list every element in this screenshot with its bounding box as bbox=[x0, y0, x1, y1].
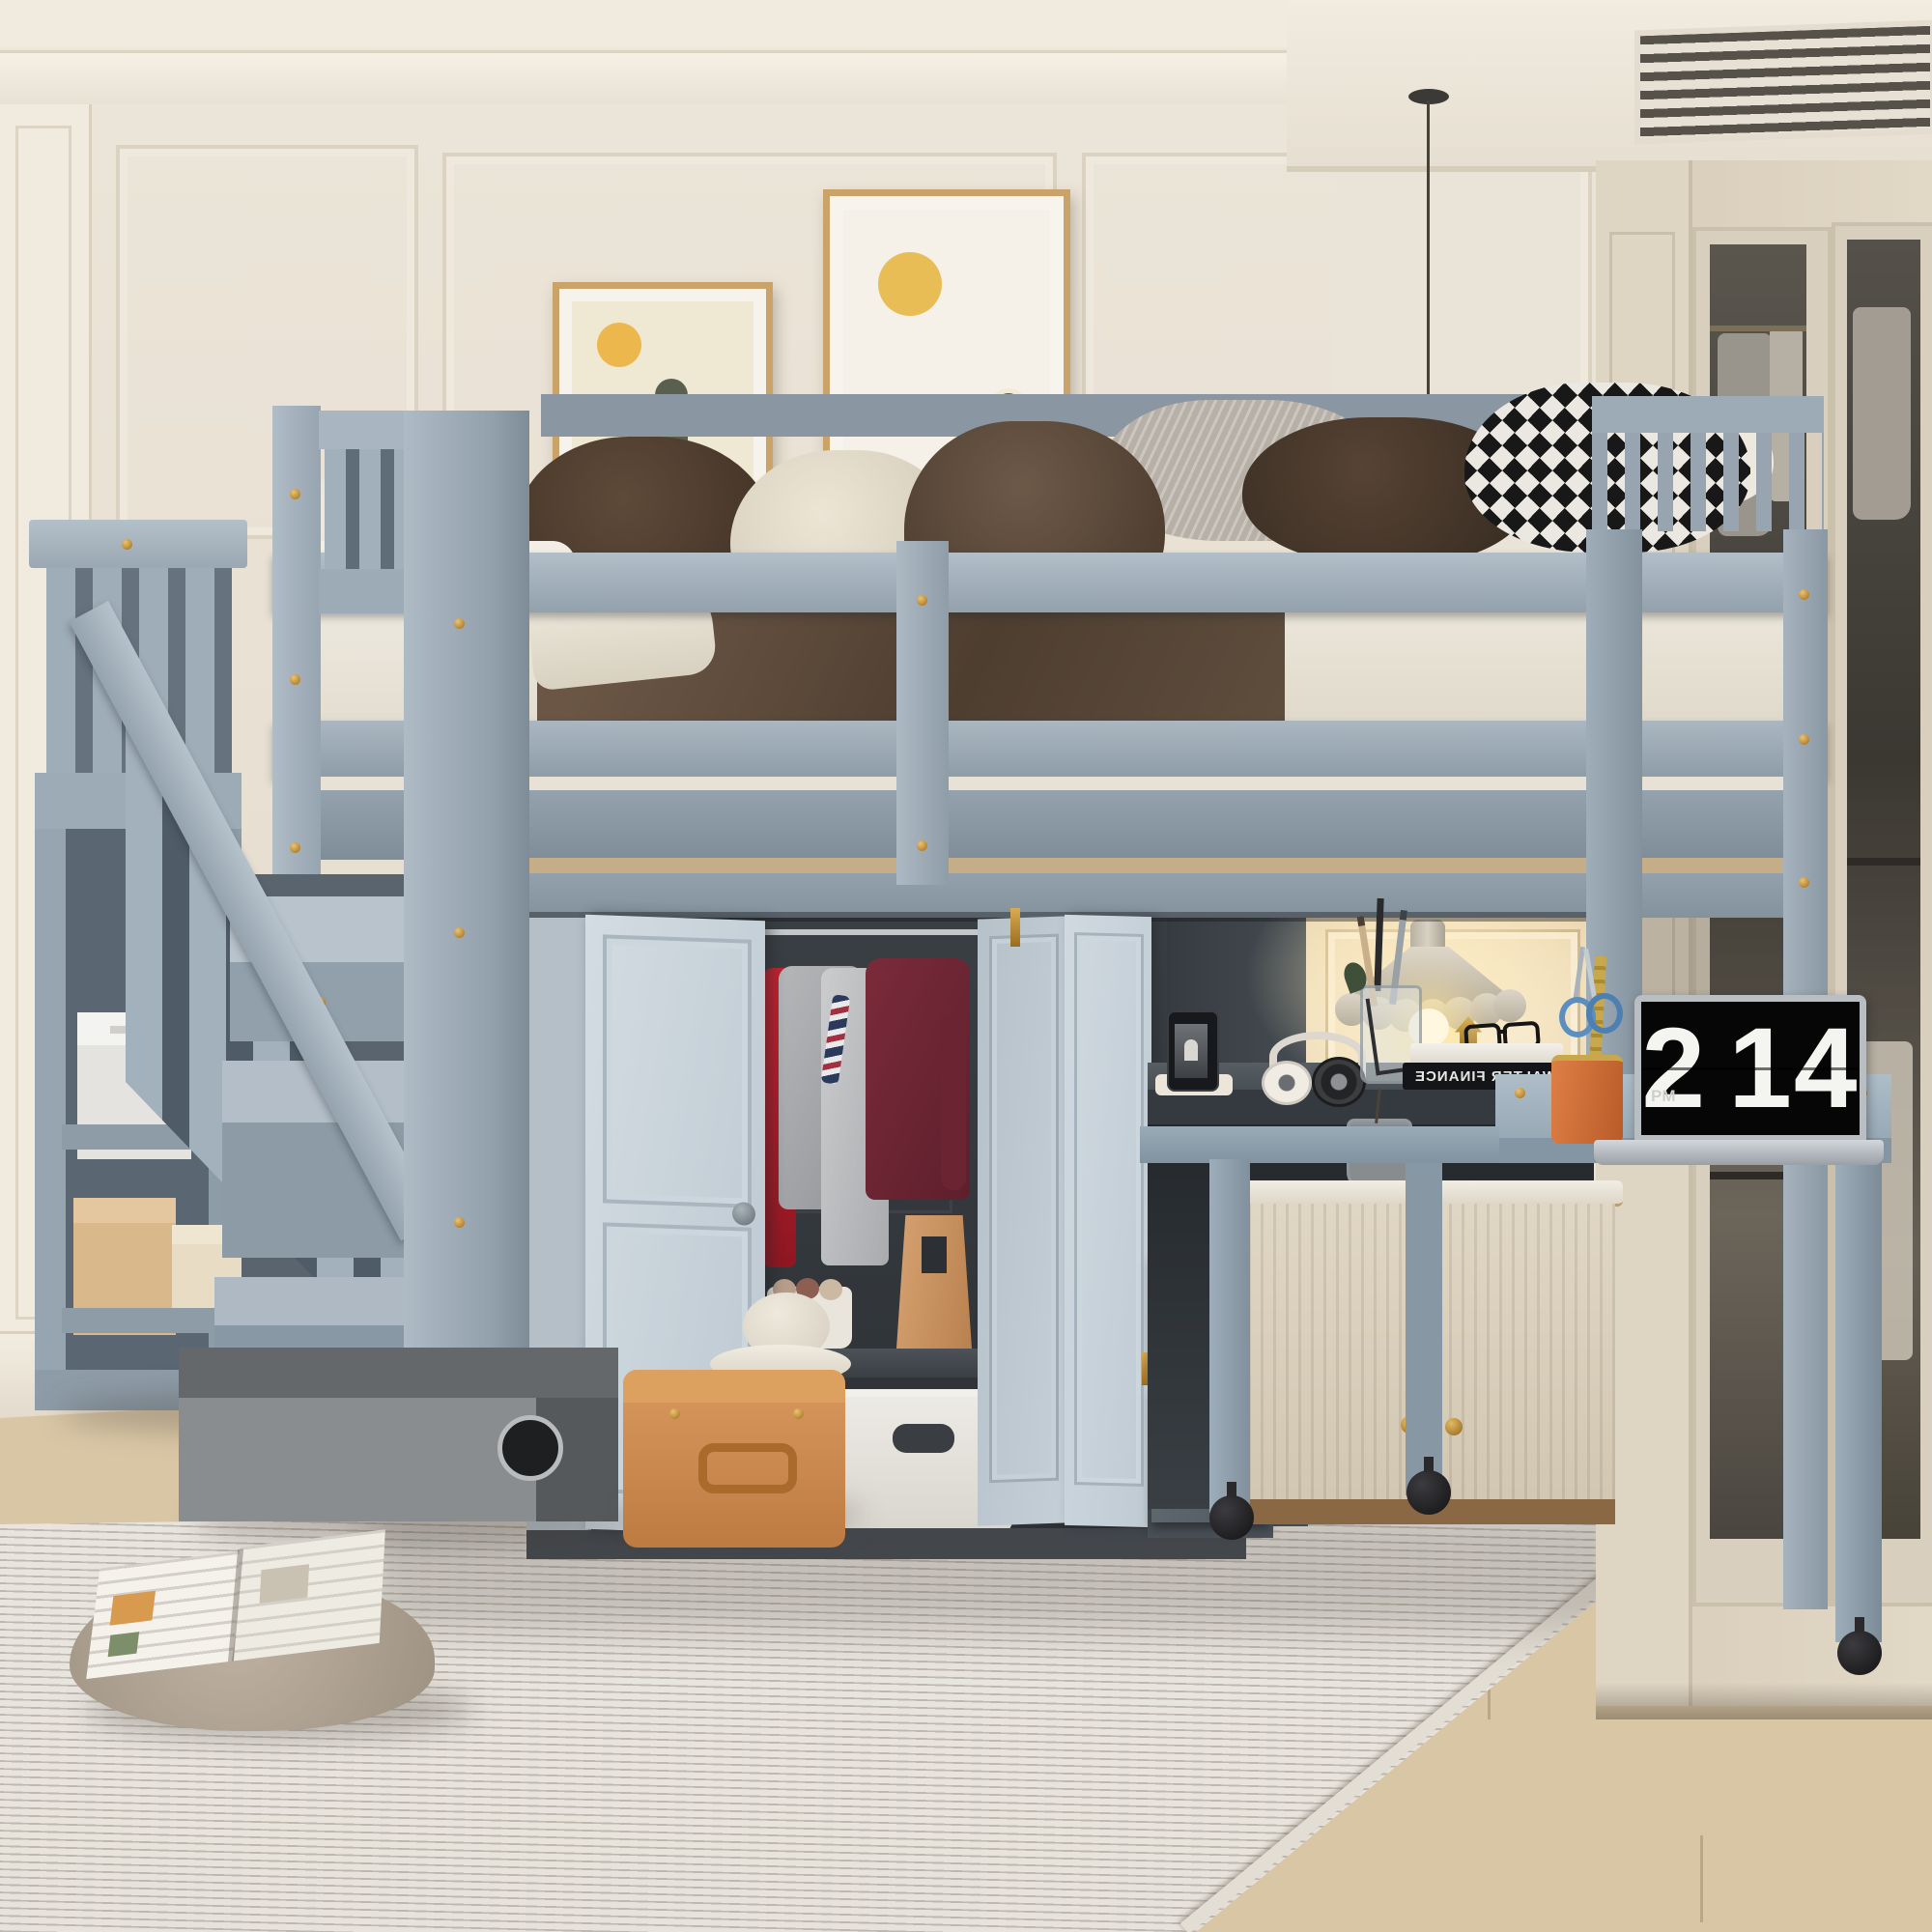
laptop: 2 14 PM bbox=[1594, 995, 1884, 1175]
caster-wheel bbox=[1837, 1631, 1882, 1675]
laptop-screen: 2 14 PM bbox=[1641, 1002, 1860, 1135]
room-photo: T WALTER FINAN bbox=[0, 0, 1932, 1932]
magazine-page-right bbox=[234, 1529, 385, 1661]
table-leg-front-left bbox=[1209, 1159, 1250, 1513]
table-leg-front-right bbox=[1835, 1159, 1882, 1642]
caster-wheel bbox=[1406, 1470, 1451, 1515]
laptop-base bbox=[1594, 1140, 1884, 1165]
table-leg-back bbox=[1406, 1159, 1442, 1495]
brass-screw bbox=[1515, 1088, 1525, 1098]
magazine-photo bbox=[108, 1632, 140, 1657]
magazine-photo bbox=[110, 1591, 156, 1626]
flip-clock-seam bbox=[1641, 1067, 1860, 1070]
magazine-photo bbox=[260, 1564, 309, 1604]
laptop-screen-bezel: 2 14 PM bbox=[1634, 995, 1866, 1142]
flip-clock-meridiem: PM bbox=[1651, 1087, 1676, 1106]
table-front-rail bbox=[1140, 1126, 1499, 1163]
caster-wheel bbox=[1209, 1495, 1254, 1540]
scissor-blade bbox=[1573, 947, 1585, 1003]
magazine-page-left bbox=[86, 1550, 245, 1679]
